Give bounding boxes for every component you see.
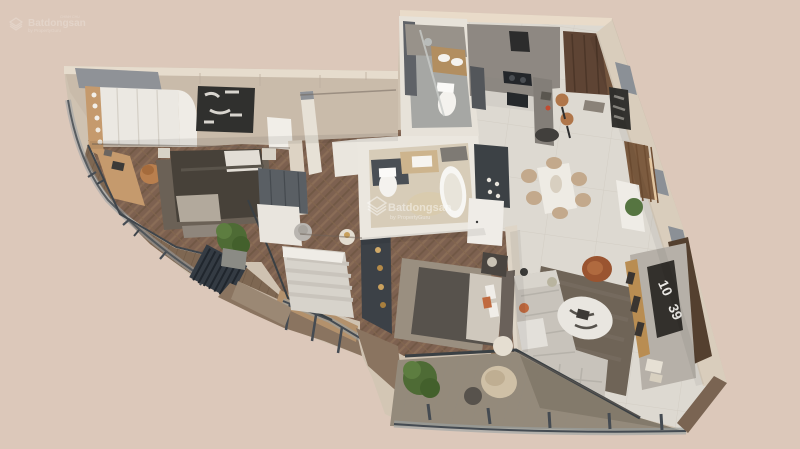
svg-text:by PropertyGuru: by PropertyGuru	[390, 215, 430, 221]
svg-text:CHINH CHU: CHINH CHU	[60, 15, 80, 19]
svg-text:Batdongsan: Batdongsan	[388, 202, 452, 214]
svg-text:by PropertyGuru: by PropertyGuru	[28, 28, 62, 33]
